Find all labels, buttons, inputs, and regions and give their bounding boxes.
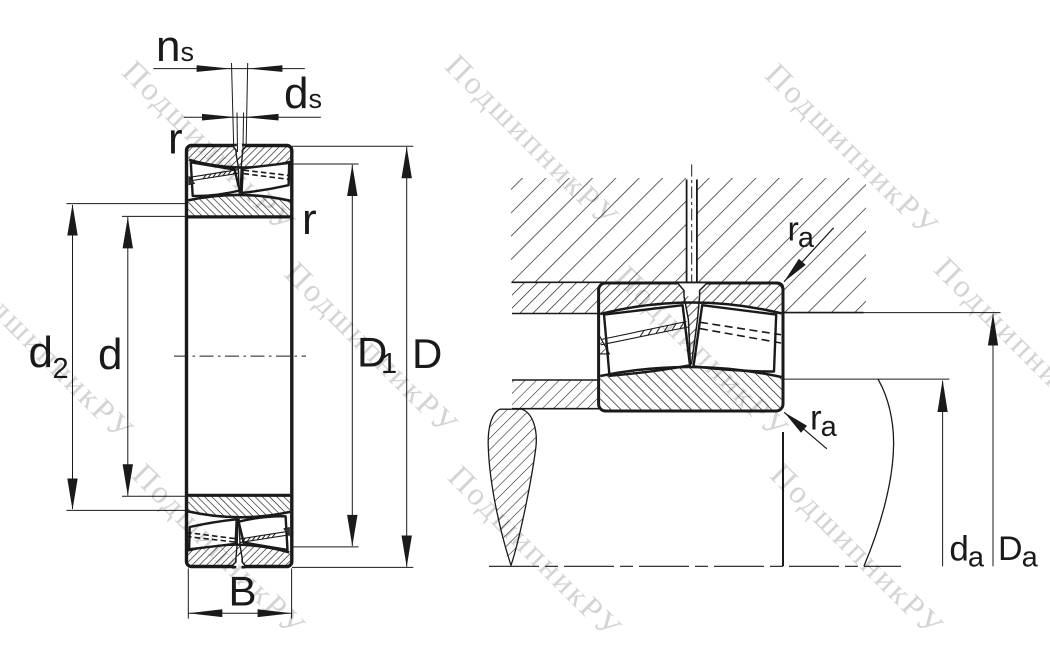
svg-text:r: r	[302, 195, 317, 244]
svg-text:d: d	[98, 330, 122, 379]
